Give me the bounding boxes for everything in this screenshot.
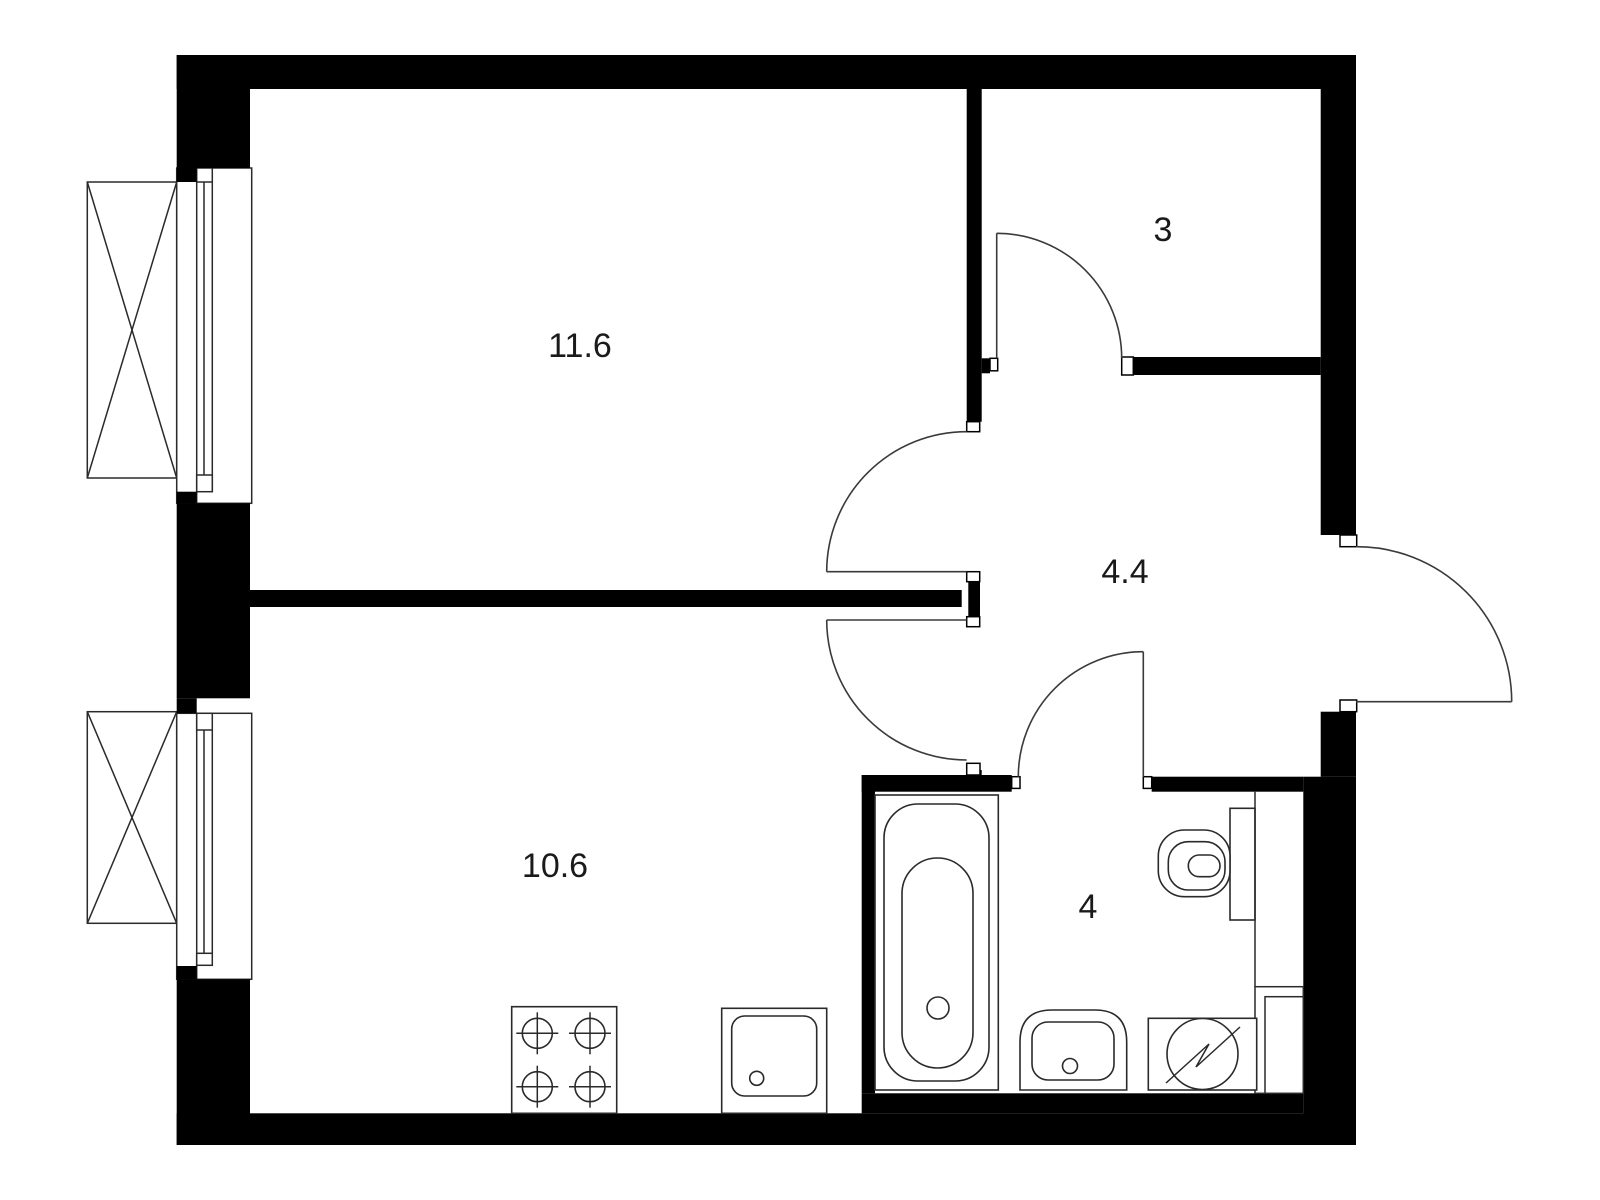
- wall-left-notch: [177, 966, 197, 979]
- kitchen-sink: [722, 1008, 827, 1113]
- room-label-living: 11.6: [548, 327, 612, 365]
- window-frame-tick: [197, 475, 213, 492]
- washing-machine: [1148, 1018, 1256, 1090]
- window-frame-tick: [197, 713, 213, 730]
- toilet-cistern: [1230, 808, 1255, 920]
- floor-plan-page: 11.6 3 4.4 10.6 4: [0, 0, 1600, 1200]
- wall-bottom: [177, 1113, 1356, 1145]
- room-label-kitchen: 10.6: [522, 847, 588, 885]
- wall-left-top-block: [177, 55, 250, 168]
- door-living: [827, 432, 967, 572]
- wall-left-notch: [177, 492, 197, 504]
- jamb: [1143, 777, 1151, 789]
- wall-stub-room-3-hinge: [982, 358, 990, 373]
- wall-divider-end-cap: [968, 582, 980, 617]
- room-label-bathroom: 4: [1079, 888, 1098, 926]
- window-frame: [177, 713, 252, 979]
- wall-living-hallway: [967, 88, 982, 422]
- jamb: [990, 358, 998, 371]
- jamb: [1012, 777, 1020, 789]
- door-jambs: [967, 357, 1357, 788]
- window-frame-tick: [197, 168, 213, 182]
- door-arc: [827, 432, 967, 572]
- door-bathroom: [1018, 652, 1143, 777]
- plumbing-shaft: [1255, 792, 1303, 1094]
- wall-right-lower: [1303, 777, 1356, 1145]
- jamb: [967, 763, 980, 775]
- cooktop: [512, 1007, 617, 1114]
- wall-living-kitchen-divider: [250, 590, 962, 607]
- door-room-3: [997, 233, 1122, 358]
- entrance-door: [1356, 547, 1512, 702]
- room-label-3: 3: [1154, 211, 1173, 249]
- door-arc: [827, 620, 967, 760]
- room-labels: 11.6 3 4.4 10.6 4: [522, 211, 1173, 926]
- door-arc: [1356, 547, 1512, 702]
- jamb: [967, 422, 980, 432]
- toilet: [1158, 808, 1255, 920]
- bathtub-drain: [927, 997, 949, 1019]
- window-bottom-left: [87, 712, 251, 980]
- door-arc: [997, 233, 1122, 358]
- wall-bathroom-top-right: [1152, 777, 1304, 792]
- shaft-box-inner: [1265, 997, 1303, 1094]
- jamb: [967, 617, 980, 627]
- sink-drain: [750, 1071, 764, 1085]
- wall-left-notch: [177, 168, 197, 182]
- jamb: [1122, 357, 1134, 375]
- wall-left-mid-block: [177, 503, 250, 698]
- wall-top: [177, 55, 1356, 89]
- jamb: [1340, 535, 1357, 547]
- window-top-left: [87, 168, 251, 503]
- wall-left-bottom-block: [177, 979, 250, 1145]
- window-frame-tick: [197, 953, 213, 965]
- wash-basin: [1020, 1010, 1127, 1090]
- wall-room-3-hallway: [1133, 357, 1320, 375]
- door-arc: [1018, 652, 1143, 777]
- door-kitchen: [827, 620, 967, 760]
- sink-bowl: [732, 1016, 817, 1096]
- wall-bathroom-top-left: [862, 775, 1012, 792]
- wall-left-notch: [177, 698, 197, 713]
- wall-right-middle: [1321, 712, 1356, 777]
- wall-bathroom-left: [862, 775, 875, 1093]
- wall-right-upper: [1321, 89, 1356, 535]
- jamb: [1340, 700, 1357, 712]
- window-frame: [177, 168, 252, 503]
- basin-drain: [1063, 1059, 1078, 1074]
- jamb: [967, 572, 980, 582]
- bathtub-basin: [902, 858, 973, 1068]
- wall-bathroom-floor: [862, 1093, 1304, 1113]
- toilet-flush: [1188, 855, 1220, 877]
- floor-plan-drawing: 11.6 3 4.4 10.6 4: [0, 0, 1600, 1200]
- room-label-hallway: 4.4: [1101, 553, 1148, 591]
- doors: [827, 233, 1512, 776]
- bathtub: [875, 795, 998, 1090]
